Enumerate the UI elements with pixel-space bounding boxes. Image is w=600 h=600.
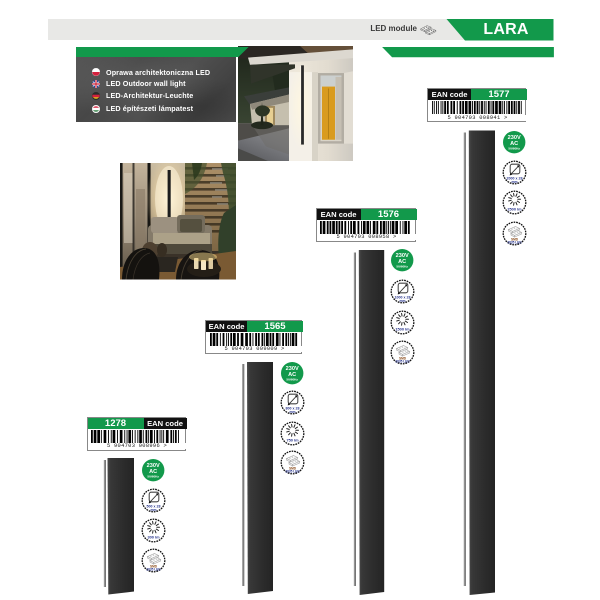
svg-text:mm: mm (289, 410, 295, 414)
svg-text:2835 LED: 2835 LED (285, 469, 300, 473)
svg-text:50/60Hz: 50/60Hz (508, 147, 520, 151)
svg-text:2835 LED: 2835 LED (395, 360, 410, 364)
svg-text:2500 lm: 2500 lm (507, 207, 522, 212)
svg-text:2835 LED: 2835 LED (146, 568, 161, 572)
svg-text:50/60Hz: 50/60Hz (286, 378, 298, 382)
svg-text:mm: mm (511, 179, 517, 183)
svg-text:50/60Hz: 50/60Hz (397, 265, 409, 269)
svg-text:300 lm: 300 lm (147, 535, 160, 540)
svg-text:2835 LED: 2835 LED (507, 240, 522, 244)
svg-text:mm: mm (399, 299, 405, 303)
svg-text:1500 lm: 1500 lm (395, 327, 410, 332)
svg-text:mm: mm (150, 508, 156, 512)
svg-text:750 lm: 750 lm (286, 438, 299, 443)
svg-text:50/60Hz: 50/60Hz (147, 474, 159, 478)
